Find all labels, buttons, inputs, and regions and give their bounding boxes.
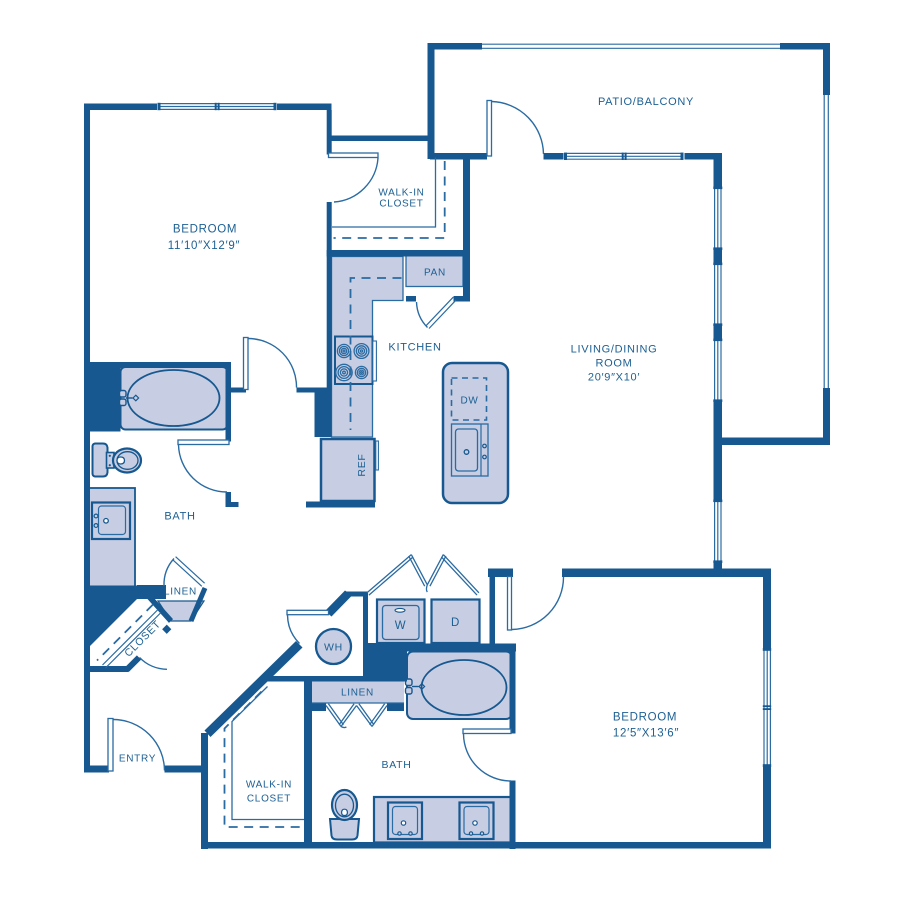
svg-text:BEDROOM: BEDROOM — [173, 224, 237, 236]
svg-text:D: D — [451, 617, 460, 629]
svg-text:WALK-IN: WALK-IN — [378, 188, 424, 199]
svg-text:KITCHEN: KITCHEN — [388, 342, 441, 354]
svg-text:WH: WH — [324, 642, 343, 654]
svg-text:CLOSET: CLOSET — [247, 794, 291, 805]
svg-text:CLOSET: CLOSET — [379, 199, 423, 210]
svg-text:LINEN: LINEN — [164, 587, 197, 598]
svg-text:20′9″X10′: 20′9″X10′ — [588, 372, 640, 384]
svg-text:PAN: PAN — [424, 268, 446, 279]
svg-text:WALK-IN: WALK-IN — [246, 780, 292, 791]
svg-text:PATIO/BALCONY: PATIO/BALCONY — [598, 96, 694, 108]
svg-text:DW: DW — [460, 396, 478, 407]
svg-text:LINEN: LINEN — [341, 688, 374, 699]
svg-text:ENTRY: ENTRY — [119, 754, 156, 765]
svg-text:BEDROOM: BEDROOM — [613, 712, 677, 724]
svg-text:11′10″X12′9″: 11′10″X12′9″ — [168, 240, 240, 252]
svg-text:BATH: BATH — [381, 759, 411, 771]
svg-text:12′5″X13′6″: 12′5″X13′6″ — [613, 728, 679, 740]
svg-text:LIVING/DINING: LIVING/DINING — [571, 344, 658, 356]
svg-text:REF: REF — [356, 453, 368, 476]
svg-text:BATH: BATH — [164, 511, 195, 523]
svg-text:W: W — [395, 620, 407, 632]
svg-text:ROOM: ROOM — [595, 358, 632, 370]
